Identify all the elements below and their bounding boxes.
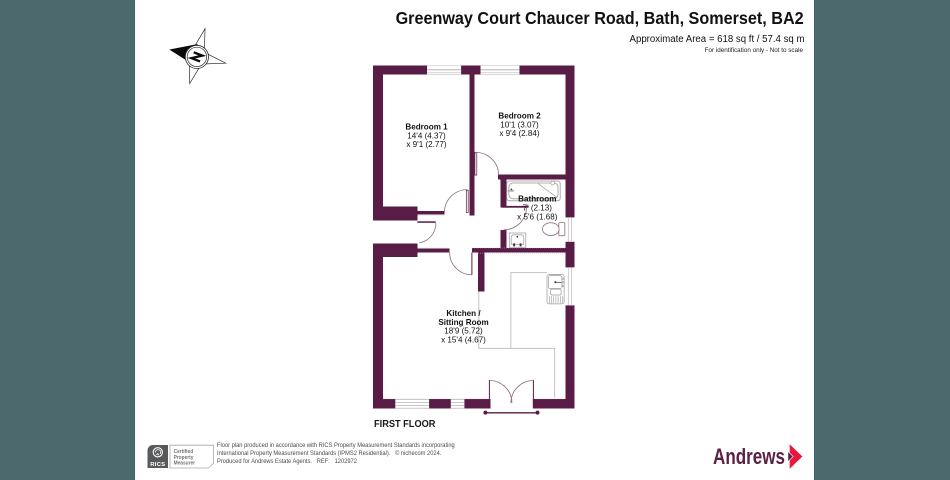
svg-text:Bathroom: Bathroom: [518, 194, 556, 203]
svg-text:x 9'4 (2.84): x 9'4 (2.84): [499, 129, 540, 138]
svg-text:x 15'4 (4.67): x 15'4 (4.67): [441, 336, 486, 345]
svg-text:x 5'6 (1.68): x 5'6 (1.68): [517, 213, 558, 222]
svg-text:7' (2.13): 7' (2.13): [523, 204, 553, 213]
svg-text:RICS: RICS: [150, 462, 165, 468]
svg-text:14'4 (4.37): 14'4 (4.37): [407, 131, 446, 140]
svg-text:Bedroom 1: Bedroom 1: [405, 123, 448, 132]
svg-text:Sitting Room: Sitting Room: [438, 318, 488, 327]
svg-text:x 9'1 (2.77): x 9'1 (2.77): [406, 140, 447, 149]
svg-text:Kitchen /: Kitchen /: [446, 309, 481, 318]
svg-text:Measurer: Measurer: [174, 460, 195, 466]
svg-text:Bedroom 2: Bedroom 2: [498, 111, 541, 120]
svg-text:10'1 (3.07): 10'1 (3.07): [500, 120, 539, 129]
svg-text:18'9 (5.72): 18'9 (5.72): [444, 327, 483, 336]
